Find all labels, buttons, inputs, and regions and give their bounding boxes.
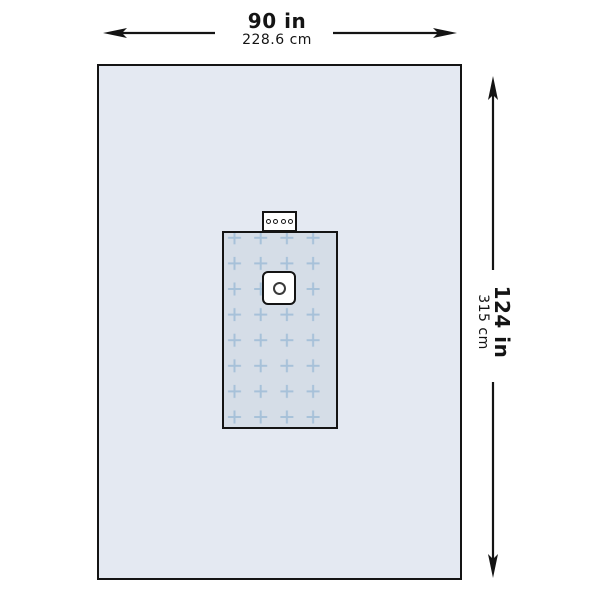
width-centimeters-text: 228.6 cm [177, 32, 377, 48]
tab-hole [266, 219, 271, 224]
cross-pattern [224, 233, 335, 426]
height-inches-text: 124 in [491, 242, 512, 402]
tab-hole [273, 219, 278, 224]
reinforcement-panel [222, 231, 338, 429]
width-dimension-label: 90 in 228.6 cm [177, 11, 377, 48]
tube-holder-tab [262, 211, 297, 232]
drape-dimension-diagram: 90 in 228.6 cm 124 in 315 cm [0, 0, 600, 600]
arrow-up-icon [488, 76, 498, 270]
height-dimension-label: 124 in 315 cm [468, 242, 512, 402]
fenestration-frame [262, 271, 296, 305]
width-inches-text: 90 in [177, 11, 377, 32]
height-centimeters-text: 315 cm [475, 242, 491, 402]
tab-hole [288, 219, 293, 224]
tab-hole [281, 219, 286, 224]
arrow-down-icon [488, 382, 498, 578]
fenestration-hole [273, 282, 286, 295]
